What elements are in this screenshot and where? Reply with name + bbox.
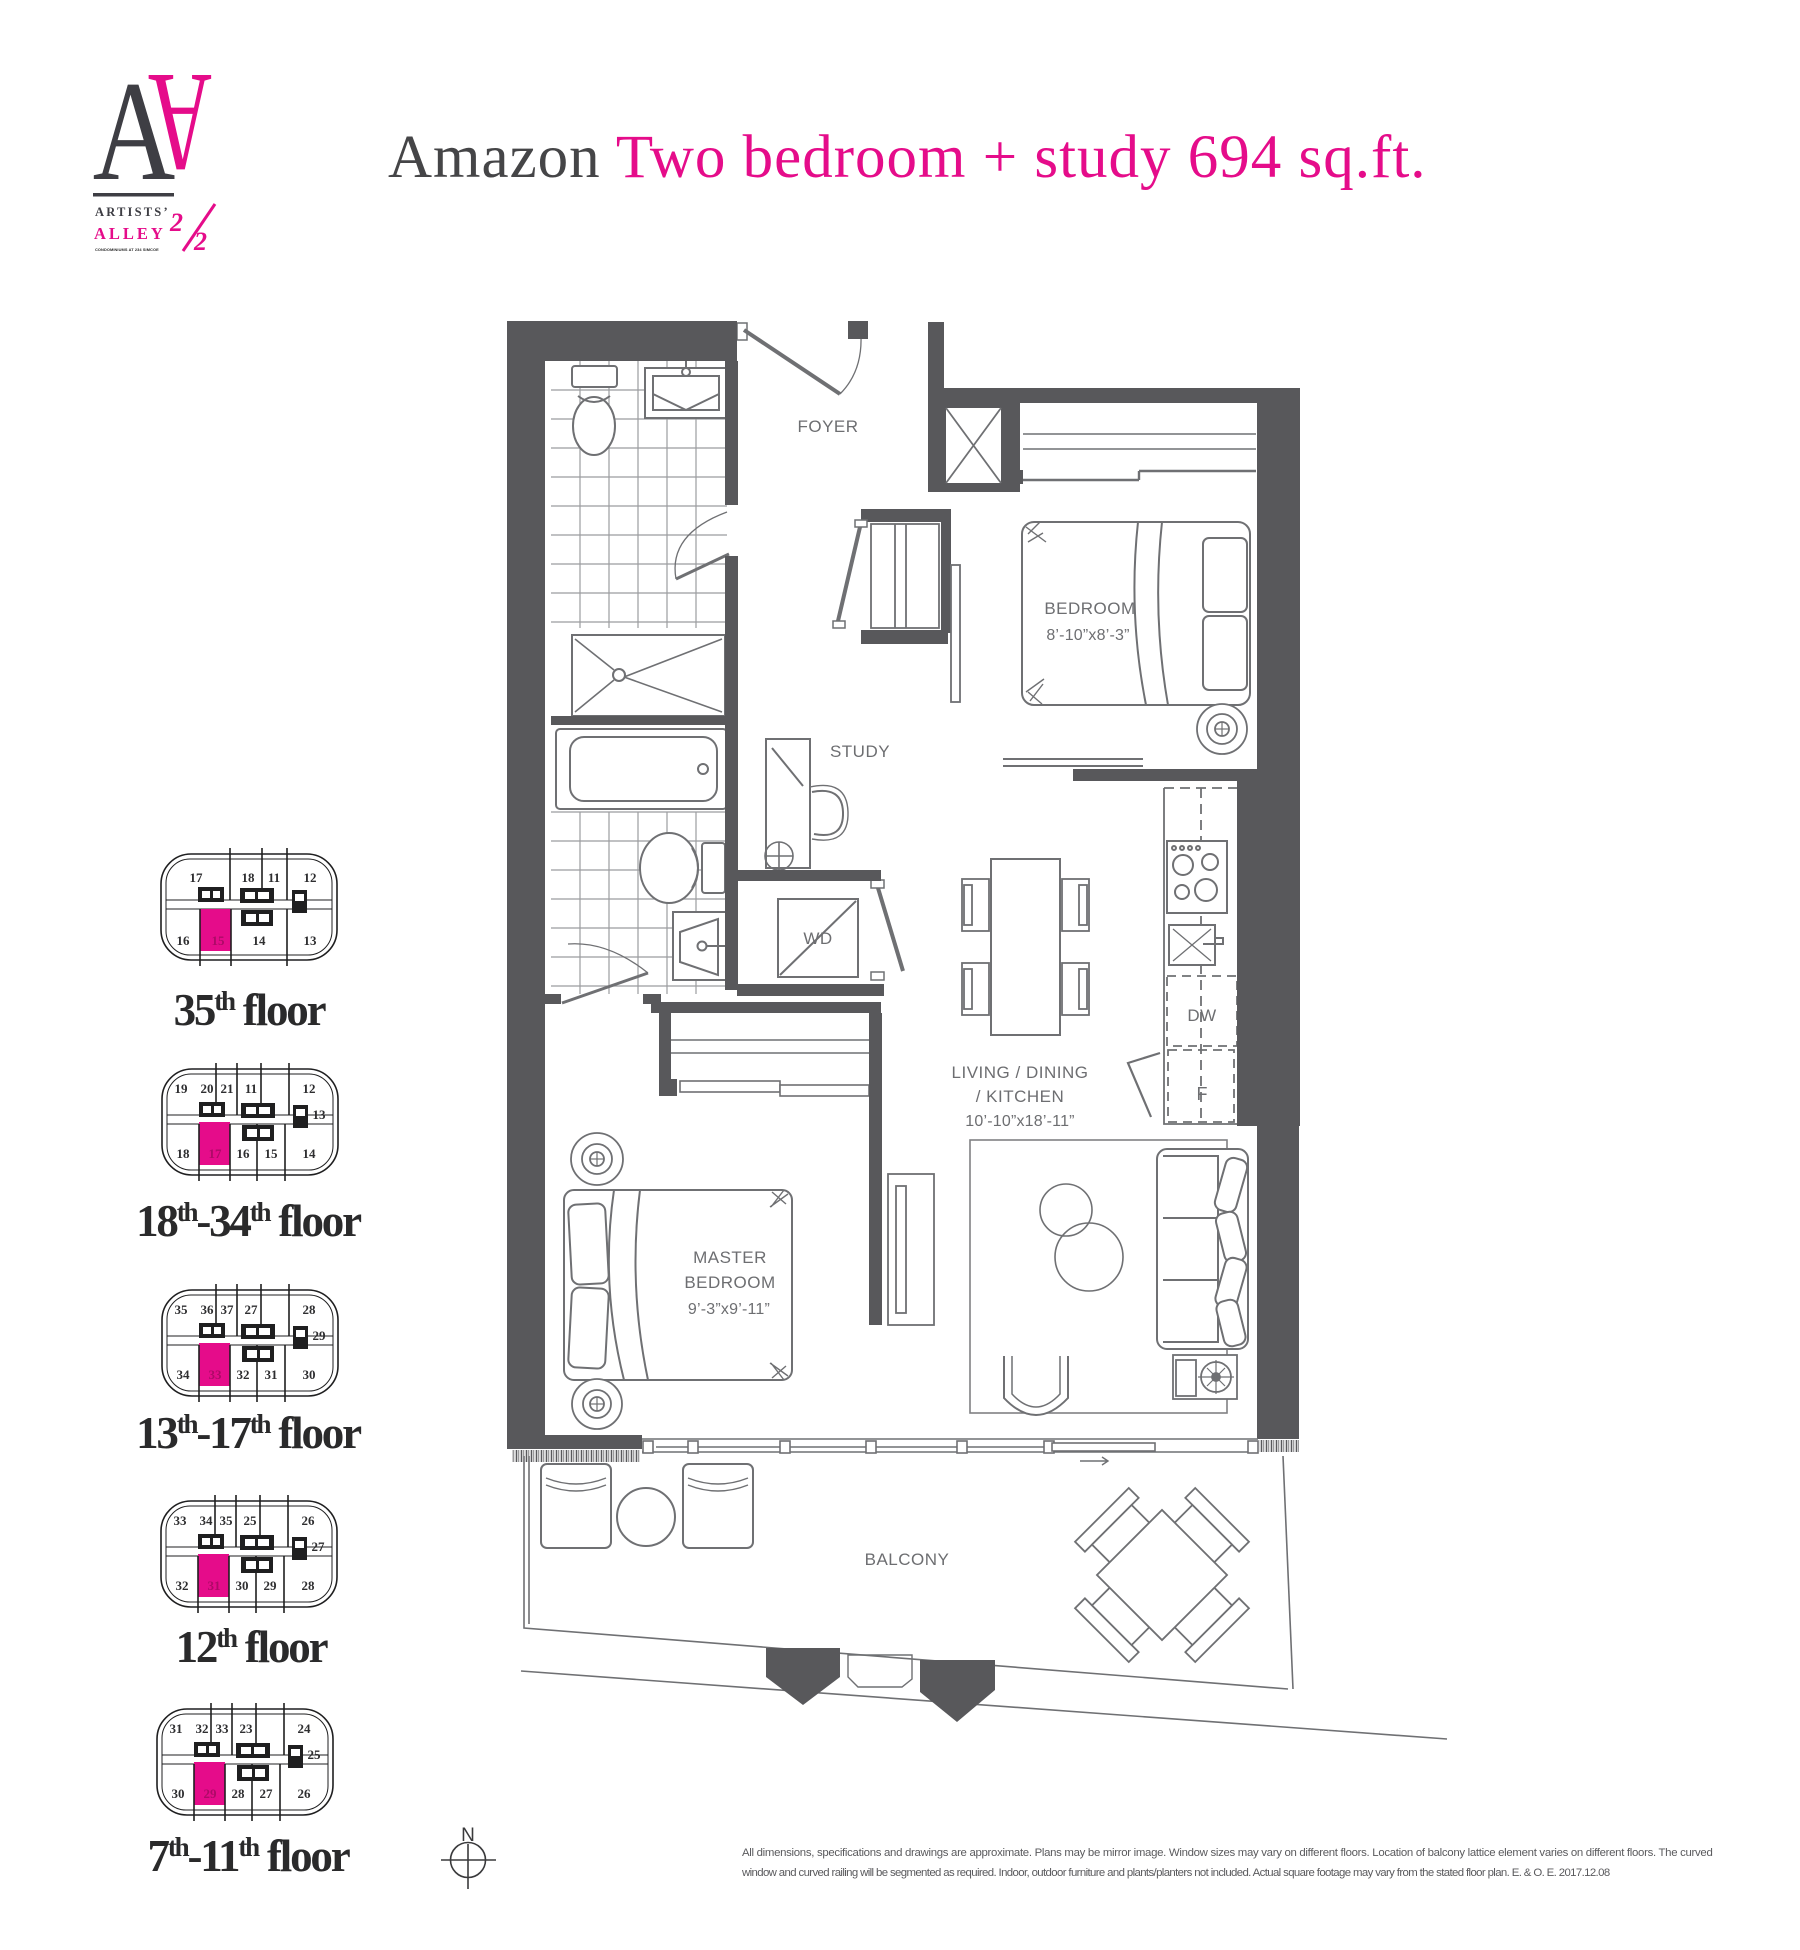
svg-text:18: 18	[242, 870, 256, 885]
svg-text:30: 30	[303, 1367, 316, 1382]
svg-text:31: 31	[265, 1367, 278, 1382]
svg-text:CONDOMINIUMS AT 234 SIMCOE: CONDOMINIUMS AT 234 SIMCOE	[95, 247, 159, 252]
svg-text:ALLEY: ALLEY	[94, 224, 166, 243]
svg-text:27: 27	[245, 1302, 259, 1317]
svg-text:32: 32	[196, 1721, 209, 1736]
svg-text:13: 13	[313, 1107, 327, 1122]
svg-text:28: 28	[232, 1786, 246, 1801]
svg-text:25: 25	[244, 1513, 258, 1528]
svg-text:33: 33	[209, 1367, 223, 1382]
svg-text:32: 32	[176, 1578, 189, 1593]
svg-text:10’-10”x18’-11”: 10’-10”x18’-11”	[965, 1113, 1074, 1130]
svg-text:window and curved railing will: window and curved railing will be segmen…	[741, 1867, 1610, 1879]
svg-text:26: 26	[302, 1513, 316, 1528]
svg-text:12: 12	[304, 870, 317, 885]
svg-text:18: 18	[177, 1146, 191, 1161]
svg-text:31: 31	[208, 1578, 221, 1593]
svg-text:BALCONY: BALCONY	[865, 1550, 950, 1569]
svg-text:2: 2	[193, 227, 207, 256]
svg-text:FOYER: FOYER	[797, 417, 858, 436]
svg-text:14: 14	[303, 1146, 317, 1161]
svg-text:16: 16	[237, 1146, 251, 1161]
svg-text:37: 37	[221, 1302, 235, 1317]
svg-text:DW: DW	[1187, 1006, 1216, 1025]
svg-text:13: 13	[304, 933, 318, 948]
svg-text:34: 34	[200, 1513, 214, 1528]
svg-text:ARTISTS’: ARTISTS’	[95, 205, 170, 219]
svg-text:F: F	[1197, 1084, 1208, 1104]
svg-text:30: 30	[236, 1578, 249, 1593]
svg-text:32: 32	[237, 1367, 250, 1382]
svg-text:35: 35	[220, 1513, 234, 1528]
svg-text:19: 19	[175, 1081, 189, 1096]
svg-text:20: 20	[201, 1081, 214, 1096]
svg-text:29: 29	[204, 1786, 218, 1801]
svg-text:2: 2	[169, 208, 183, 237]
svg-text:35: 35	[175, 1302, 189, 1317]
svg-text:11: 11	[245, 1081, 257, 1096]
svg-text:15: 15	[212, 933, 226, 948]
svg-text:24: 24	[298, 1721, 312, 1736]
svg-text:11: 11	[268, 870, 280, 885]
svg-text:A: A	[148, 44, 212, 203]
svg-text:36: 36	[201, 1302, 215, 1317]
svg-text:27: 27	[260, 1786, 274, 1801]
svg-text:35th floor: 35th floor	[174, 985, 326, 1035]
svg-text:All dimensions, specifications: All dimensions, specifications and drawi…	[742, 1847, 1712, 1859]
svg-text:21: 21	[221, 1081, 234, 1096]
svg-text:25: 25	[308, 1747, 322, 1762]
svg-text:N: N	[461, 1825, 475, 1846]
svg-text:33: 33	[174, 1513, 188, 1528]
svg-text:28: 28	[303, 1302, 317, 1317]
svg-text:29: 29	[313, 1328, 327, 1343]
svg-text:9’-3”x9’-11”: 9’-3”x9’-11”	[688, 1301, 770, 1318]
svg-text:STUDY: STUDY	[830, 742, 890, 761]
svg-text:14: 14	[253, 933, 267, 948]
svg-text:29: 29	[264, 1578, 278, 1593]
svg-text:13th-17th floor: 13th-17th floor	[136, 1408, 361, 1458]
svg-text:33: 33	[216, 1721, 230, 1736]
svg-text:28: 28	[302, 1578, 316, 1593]
svg-text:17: 17	[209, 1146, 223, 1161]
svg-text:34: 34	[177, 1367, 191, 1382]
svg-text:/ KITCHEN: / KITCHEN	[976, 1087, 1065, 1106]
svg-text:WD: WD	[803, 929, 832, 948]
svg-text:23: 23	[240, 1721, 254, 1736]
svg-text:LIVING / DINING: LIVING / DINING	[952, 1063, 1089, 1082]
svg-text:MASTER: MASTER	[693, 1248, 767, 1267]
svg-text:30: 30	[172, 1786, 185, 1801]
svg-text:31: 31	[170, 1721, 183, 1736]
svg-text:12: 12	[303, 1081, 316, 1096]
svg-text:BEDROOM: BEDROOM	[684, 1273, 775, 1292]
svg-text:16: 16	[177, 933, 191, 948]
svg-text:12th floor: 12th floor	[176, 1622, 328, 1672]
svg-text:26: 26	[298, 1786, 312, 1801]
svg-text:27: 27	[312, 1539, 326, 1554]
svg-text:17: 17	[190, 870, 204, 885]
svg-text:15: 15	[265, 1146, 279, 1161]
svg-text:Amazon Two bedroom + study 694: Amazon Two bedroom + study 694 sq.ft.	[388, 124, 1427, 191]
svg-text:8’-10”x8’-3”: 8’-10”x8’-3”	[1046, 627, 1129, 644]
svg-text:BEDROOM: BEDROOM	[1044, 599, 1135, 618]
svg-text:18th-34th floor: 18th-34th floor	[136, 1196, 361, 1246]
